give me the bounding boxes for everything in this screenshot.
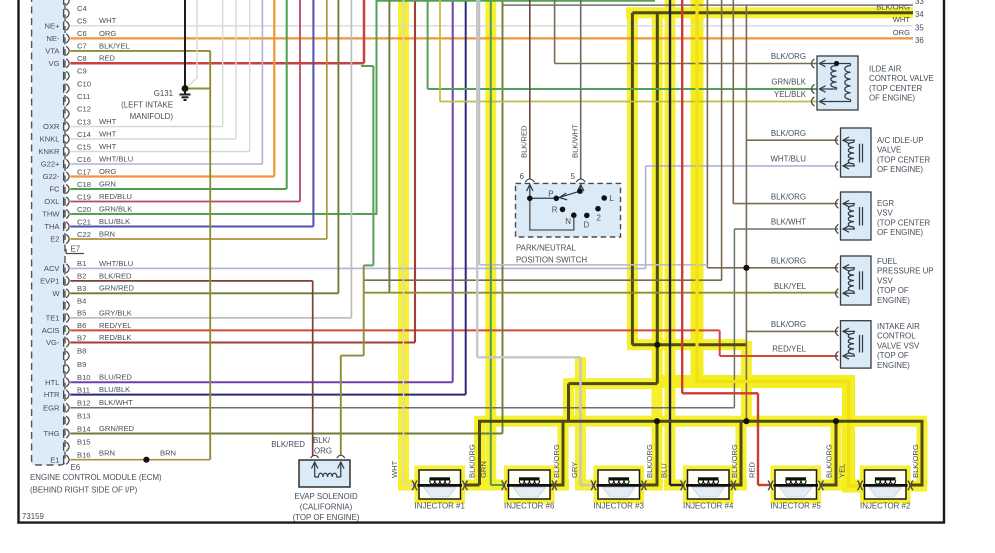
svg-text:WHT/BLU: WHT/BLU	[770, 155, 806, 164]
svg-text:B3: B3	[77, 284, 86, 293]
svg-text:B12: B12	[77, 399, 91, 408]
svg-text:ORG: ORG	[99, 29, 116, 38]
svg-text:ENGINE): ENGINE)	[877, 361, 910, 370]
svg-text:BLK/: BLK/	[313, 436, 331, 445]
svg-text:B10: B10	[77, 373, 91, 382]
svg-text:B5: B5	[77, 309, 86, 318]
svg-text:B7: B7	[77, 333, 86, 342]
svg-text:BLK/YEL: BLK/YEL	[99, 41, 130, 50]
svg-text:INJECTOR #4: INJECTOR #4	[683, 502, 734, 511]
svg-text:YEL: YEL	[838, 464, 847, 478]
svg-text:35: 35	[915, 23, 924, 32]
svg-text:ORG: ORG	[893, 28, 910, 37]
svg-text:EVP1: EVP1	[40, 277, 59, 286]
svg-text:FUEL: FUEL	[877, 257, 898, 266]
svg-text:BLK/RED: BLK/RED	[271, 440, 305, 449]
svg-text:(TOP OF ENGINE): (TOP OF ENGINE)	[293, 513, 360, 522]
svg-text:C18: C18	[77, 180, 91, 189]
svg-text:C20: C20	[77, 205, 91, 214]
svg-text:BLK/ORG: BLK/ORG	[645, 444, 654, 478]
svg-text:B15: B15	[77, 437, 91, 446]
svg-text:BLK/ORG: BLK/ORG	[771, 257, 806, 266]
svg-text:BRN: BRN	[160, 448, 176, 457]
svg-text:B2: B2	[77, 272, 86, 281]
svg-text:(TOP OF: (TOP OF	[877, 286, 909, 295]
svg-text:G22-: G22-	[43, 172, 60, 181]
svg-text:BLK/ORG: BLK/ORG	[771, 192, 806, 201]
svg-text:PARK/NEUTRAL: PARK/NEUTRAL	[516, 244, 577, 253]
svg-text:INJECTOR #6: INJECTOR #6	[504, 502, 555, 511]
svg-text:(TOP CENTER: (TOP CENTER	[869, 84, 922, 93]
svg-text:P: P	[548, 190, 553, 199]
svg-text:EGR: EGR	[43, 403, 60, 412]
svg-text:GRN: GRN	[99, 179, 116, 188]
svg-text:CONTROL VALVE: CONTROL VALVE	[869, 74, 934, 83]
svg-text:5: 5	[571, 172, 576, 181]
svg-text:BLU/BLK: BLU/BLK	[99, 217, 130, 226]
svg-text:BLK/ORG: BLK/ORG	[825, 444, 834, 478]
svg-text:ACIS: ACIS	[42, 326, 60, 335]
svg-text:BLU/BLK: BLU/BLK	[99, 385, 130, 394]
svg-text:WHT/BLU: WHT/BLU	[99, 154, 133, 163]
svg-text:ACV: ACV	[44, 264, 61, 273]
svg-text:C16: C16	[77, 155, 91, 164]
svg-text:EVAP SOLENOID: EVAP SOLENOID	[294, 492, 358, 501]
svg-text:BLK/ORG: BLK/ORG	[771, 320, 806, 329]
svg-text:OF ENGINE): OF ENGINE)	[869, 94, 915, 103]
svg-text:OF ENGINE): OF ENGINE)	[877, 165, 923, 174]
svg-text:33: 33	[915, 0, 924, 6]
svg-text:C19: C19	[77, 192, 91, 201]
svg-text:GRN: GRN	[479, 461, 488, 478]
svg-text:(TOP CENTER: (TOP CENTER	[877, 218, 930, 227]
svg-text:B11: B11	[77, 385, 90, 394]
svg-text:B4: B4	[77, 296, 86, 305]
svg-text:C13: C13	[77, 117, 91, 126]
svg-text:36: 36	[915, 36, 924, 45]
svg-text:(TOP CENTER: (TOP CENTER	[877, 155, 930, 164]
svg-text:BLU: BLU	[660, 463, 669, 478]
svg-text:BRN: BRN	[99, 229, 115, 238]
svg-text:THW: THW	[42, 210, 60, 219]
svg-text:BLK/WHT: BLK/WHT	[99, 398, 133, 407]
svg-text:FC: FC	[49, 185, 60, 194]
svg-text:VSV: VSV	[877, 209, 894, 218]
svg-text:BLU/RED: BLU/RED	[99, 373, 132, 382]
svg-text:C15: C15	[77, 142, 91, 151]
svg-text:OXL: OXL	[44, 197, 59, 206]
svg-text:ORG: ORG	[99, 167, 116, 176]
svg-text:VG: VG	[49, 59, 60, 68]
svg-text:C12: C12	[77, 105, 91, 114]
svg-text:ILDE AIR: ILDE AIR	[869, 65, 902, 74]
svg-text:WHT: WHT	[99, 117, 117, 126]
svg-text:C4: C4	[77, 4, 87, 13]
svg-text:BLK/ORG: BLK/ORG	[771, 129, 806, 138]
svg-text:WHT: WHT	[893, 15, 911, 24]
svg-text:INJECTOR #3: INJECTOR #3	[594, 502, 645, 511]
svg-text:BLK/RED: BLK/RED	[520, 125, 529, 158]
svg-text:E6: E6	[71, 463, 81, 472]
svg-text:EGR: EGR	[877, 199, 894, 208]
svg-text:BLK/ORG: BLK/ORG	[876, 2, 910, 11]
svg-text:VTA: VTA	[45, 47, 60, 56]
svg-text:B16: B16	[77, 451, 91, 460]
svg-text:(BEHIND RIGHT SIDE OF I/P): (BEHIND RIGHT SIDE OF I/P)	[30, 486, 138, 495]
svg-text:RED/YEL: RED/YEL	[99, 321, 132, 330]
svg-text:WHT: WHT	[99, 16, 117, 25]
svg-text:D: D	[584, 221, 590, 230]
svg-text:(TOP OF: (TOP OF	[877, 351, 909, 360]
svg-text:W: W	[52, 289, 60, 298]
svg-text:BLK/ORG: BLK/ORG	[552, 444, 561, 478]
svg-text:ENGINE CONTROL MODULE (ECM): ENGINE CONTROL MODULE (ECM)	[30, 473, 162, 482]
svg-text:2: 2	[597, 214, 601, 223]
svg-text:C8: C8	[77, 54, 87, 63]
svg-text:VALVE VSV: VALVE VSV	[877, 341, 920, 350]
svg-text:BLK/ORG: BLK/ORG	[468, 444, 477, 478]
svg-text:C7: C7	[77, 42, 87, 51]
svg-text:CONTROL: CONTROL	[877, 332, 916, 341]
svg-text:B1: B1	[77, 259, 86, 268]
svg-text:GRY: GRY	[570, 462, 579, 478]
svg-text:POSITION SWITCH: POSITION SWITCH	[516, 256, 587, 265]
svg-text:BLK/ORG: BLK/ORG	[911, 444, 920, 478]
svg-text:RED/BLU: RED/BLU	[99, 192, 132, 201]
svg-text:YEL/BLK: YEL/BLK	[774, 90, 807, 99]
svg-text:C17: C17	[77, 167, 91, 176]
svg-text:WHT: WHT	[99, 129, 117, 138]
svg-text:HTL: HTL	[45, 378, 59, 387]
svg-text:C22: C22	[77, 230, 91, 239]
svg-text:ORG: ORG	[314, 447, 332, 456]
svg-text:RED: RED	[748, 461, 757, 478]
svg-text:E2: E2	[50, 235, 59, 244]
svg-text:GRY/BLK: GRY/BLK	[99, 308, 132, 317]
svg-text:GRN/BLK: GRN/BLK	[771, 78, 806, 87]
svg-text:C9: C9	[77, 67, 87, 76]
svg-text:B8: B8	[77, 347, 86, 356]
svg-text:WHT: WHT	[390, 460, 399, 478]
svg-text:(LEFT INTAKE: (LEFT INTAKE	[121, 101, 173, 110]
svg-text:INJECTOR #5: INJECTOR #5	[771, 502, 822, 511]
svg-text:B6: B6	[77, 321, 86, 330]
svg-text:RED: RED	[99, 54, 116, 63]
svg-text:BLK/ORG: BLK/ORG	[730, 444, 739, 478]
svg-text:RED/BLK: RED/BLK	[99, 333, 132, 342]
svg-text:NE-: NE-	[46, 34, 60, 43]
svg-text:OXR: OXR	[43, 122, 60, 131]
svg-text:BLK/ORG: BLK/ORG	[771, 52, 806, 61]
svg-text:GRN/RED: GRN/RED	[99, 424, 135, 433]
svg-text:C14: C14	[77, 130, 91, 139]
svg-text:BLK/YEL: BLK/YEL	[774, 282, 807, 291]
svg-text:INJECTOR #1: INJECTOR #1	[415, 502, 465, 511]
svg-text:E1: E1	[50, 455, 59, 464]
svg-text:C21: C21	[77, 217, 91, 226]
svg-text:KNKL: KNKL	[40, 135, 60, 144]
svg-text:OF ENGINE): OF ENGINE)	[877, 228, 923, 237]
svg-text:C5: C5	[77, 17, 87, 26]
svg-text:N: N	[565, 217, 571, 226]
svg-text:E7: E7	[71, 245, 81, 254]
svg-text:G22+: G22+	[41, 160, 60, 169]
svg-text:G131: G131	[154, 89, 173, 98]
svg-text:R: R	[552, 206, 558, 215]
svg-text:C11: C11	[77, 92, 90, 101]
svg-text:VG-: VG-	[46, 338, 60, 347]
svg-text:L: L	[610, 194, 615, 203]
svg-text:HTR: HTR	[44, 390, 60, 399]
svg-text:MANIFOLD): MANIFOLD)	[130, 112, 174, 121]
svg-text:B9: B9	[77, 360, 86, 369]
svg-text:VALVE: VALVE	[877, 146, 901, 155]
svg-text:TE1: TE1	[46, 314, 60, 323]
svg-text:C10: C10	[77, 79, 91, 88]
svg-text:B14: B14	[77, 424, 91, 433]
svg-text:INTAKE AIR: INTAKE AIR	[877, 322, 920, 331]
svg-text:VSV: VSV	[877, 276, 894, 285]
svg-text:PRESSURE UP: PRESSURE UP	[877, 267, 934, 276]
svg-text:BLK/WHT: BLK/WHT	[771, 218, 806, 227]
svg-text:RED/YEL: RED/YEL	[772, 345, 806, 354]
svg-text:KNKR: KNKR	[38, 147, 60, 156]
svg-text:73159: 73159	[22, 512, 45, 521]
svg-text:GRN/RED: GRN/RED	[99, 284, 135, 293]
svg-text:BLK/RED: BLK/RED	[99, 271, 132, 280]
svg-text:(CALIFORNIA): (CALIFORNIA)	[300, 503, 353, 512]
svg-text:THA: THA	[44, 222, 60, 231]
svg-text:BLK/WHT: BLK/WHT	[571, 124, 580, 158]
svg-text:GRN/BLK: GRN/BLK	[99, 204, 132, 213]
svg-text:NE+: NE+	[45, 21, 61, 30]
svg-text:6: 6	[520, 172, 525, 181]
svg-text:WHT: WHT	[99, 142, 117, 151]
svg-text:WHT/BLU: WHT/BLU	[99, 259, 133, 268]
svg-text:INJECTOR #2: INJECTOR #2	[860, 502, 910, 511]
svg-text:A/C IDLE-UP: A/C IDLE-UP	[877, 136, 923, 145]
svg-text:34: 34	[915, 10, 924, 19]
svg-text:BRN: BRN	[99, 448, 115, 457]
svg-text:THG: THG	[43, 429, 59, 438]
svg-text:B13: B13	[77, 411, 91, 420]
svg-text:C6: C6	[77, 29, 87, 38]
svg-text:ENGINE): ENGINE)	[877, 296, 910, 305]
